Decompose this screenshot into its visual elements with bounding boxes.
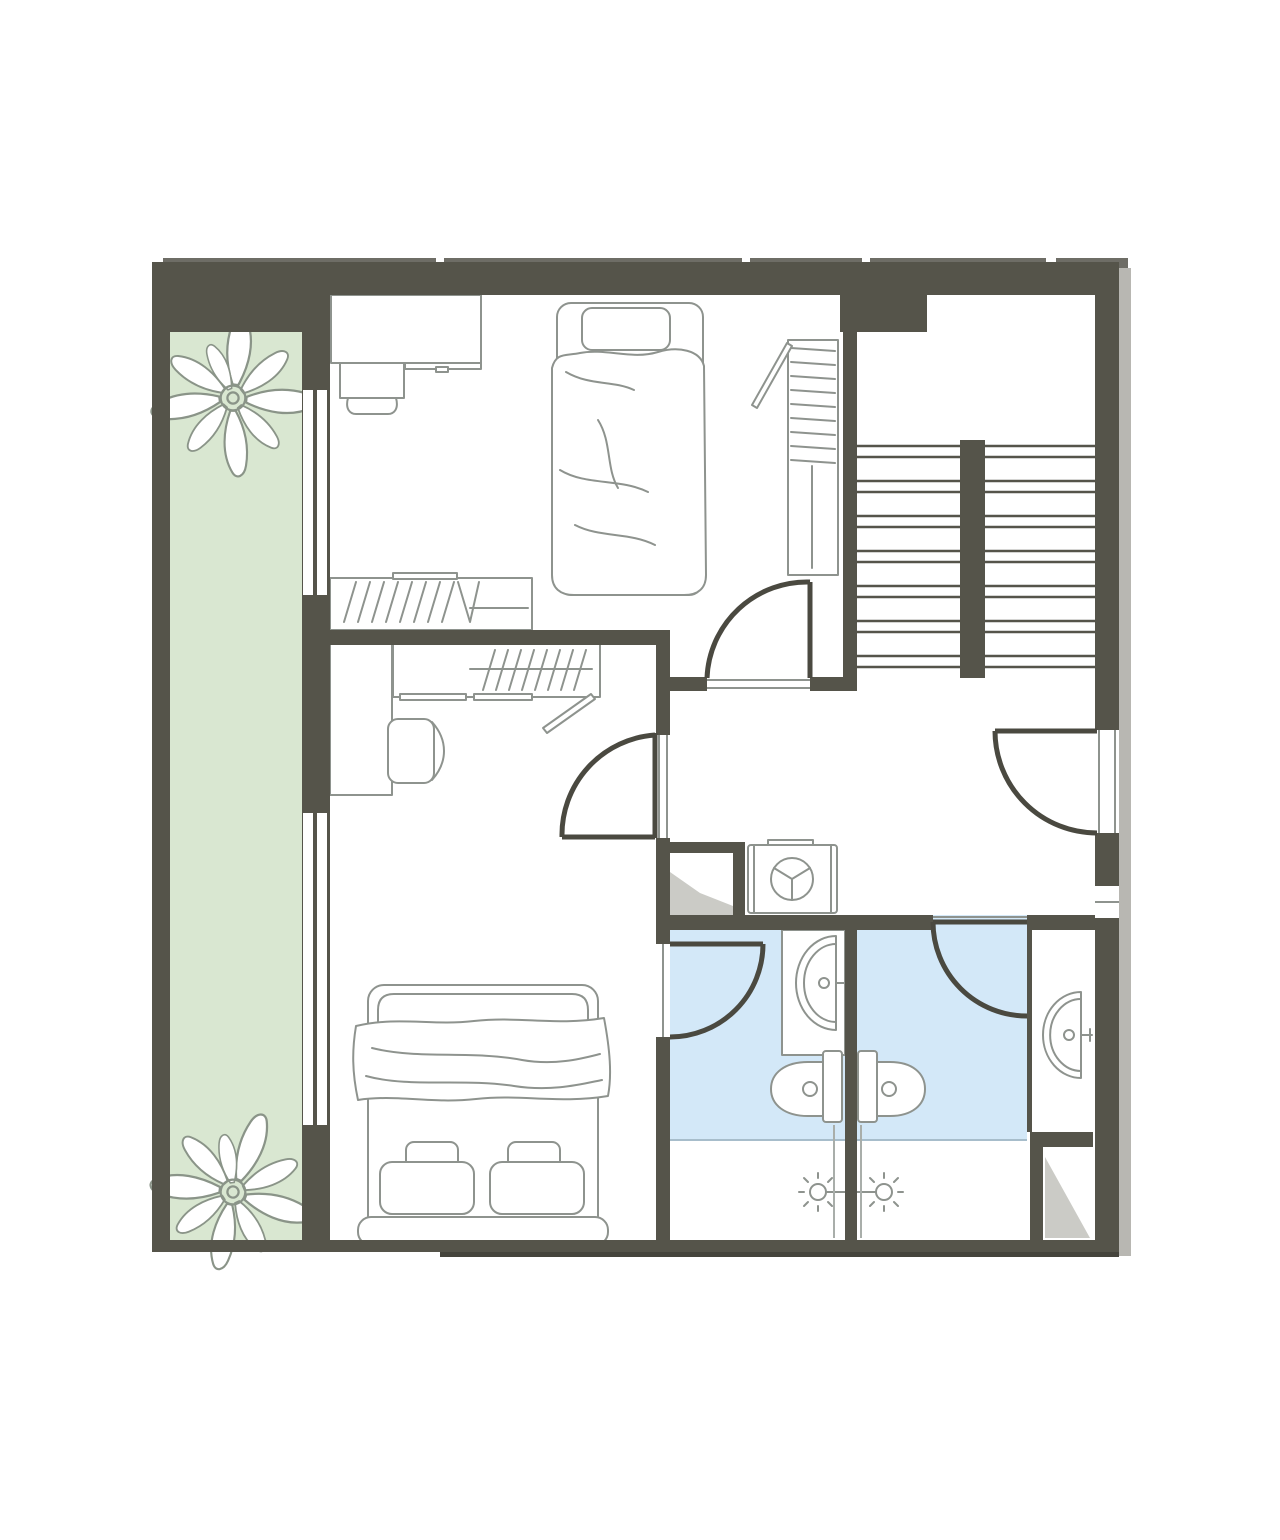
single-bed-pillow [582,308,670,350]
shelf-unit [330,578,532,630]
window-mullion [313,813,317,1125]
door-swing-arc [995,731,1097,833]
wall-stairwell-west [843,330,857,690]
door-bedroom-2 [562,733,655,838]
wall-niche-south [1030,1132,1093,1147]
stair-flight-left [855,446,960,667]
wall-hall-south-east [1027,915,1100,930]
window-mullion [313,390,317,595]
bottom-shadow-line [440,1252,1119,1257]
wall-sink-niche-divider [1027,930,1032,1132]
pillow [380,1162,474,1214]
toilet-tank [858,1051,877,1122]
single-bed-duvet [552,349,706,595]
bedroom-2-furniture [330,643,610,1245]
wall-core-upper [656,630,670,735]
office-chair-back [347,398,397,414]
hallway-fixtures [748,840,837,913]
wall-right-outer-mid [1095,833,1119,886]
wardrobe-door-open [543,694,595,733]
toilet-icon [771,1062,823,1116]
toilet-tank [823,1051,842,1122]
shower-head-icon [876,1184,892,1200]
floor-plan-page [0,0,1280,1540]
wall-top-balcony [152,262,304,332]
wall-right-outer-upper [1095,262,1119,730]
stair-flight-right [985,446,1095,667]
wall-hall-south-west [656,915,933,930]
wall-stair-spine [960,440,985,678]
clothes-rail [752,343,792,408]
floor-plan-drawing [0,0,1280,1540]
bedroom-1-furniture [330,295,838,630]
wall-closet-west [1030,1147,1043,1240]
wall-right-outer-lower [1095,918,1119,1252]
wall-bedroom1-south-west [328,630,668,645]
door-swing-arc [707,582,810,678]
door-swing-arc [562,735,655,837]
desk-notch [436,367,448,372]
wall-stair-block [840,262,927,332]
wall-bedroom1-south-left [670,677,707,691]
sink-niche-floor [1032,930,1093,1132]
wall-shaft-east [733,853,745,930]
shower-head-icon [810,1184,826,1200]
office-chair-seat [340,363,404,398]
wall-bottom-outer [152,1240,1119,1252]
wall-left-outer [152,262,170,1252]
wall-shaft-north [656,842,745,853]
bathroom-1-fixtures [771,930,848,1211]
pillow [490,1162,584,1214]
toilet-icon [877,1062,925,1116]
desk [330,643,392,795]
office-chair-seat [388,719,434,783]
shelf-tab [474,694,532,700]
wall-core-lower [656,1037,670,1240]
shelf-tab [400,694,466,700]
right-shadow [1119,268,1131,1256]
wall-top-outer [302,262,1100,295]
door-bedroom-1 [707,582,810,678]
wall-bathroom-divider [845,915,857,1240]
desk [331,295,481,363]
shelf-unit-top [393,573,457,579]
door-hallway [995,731,1097,833]
